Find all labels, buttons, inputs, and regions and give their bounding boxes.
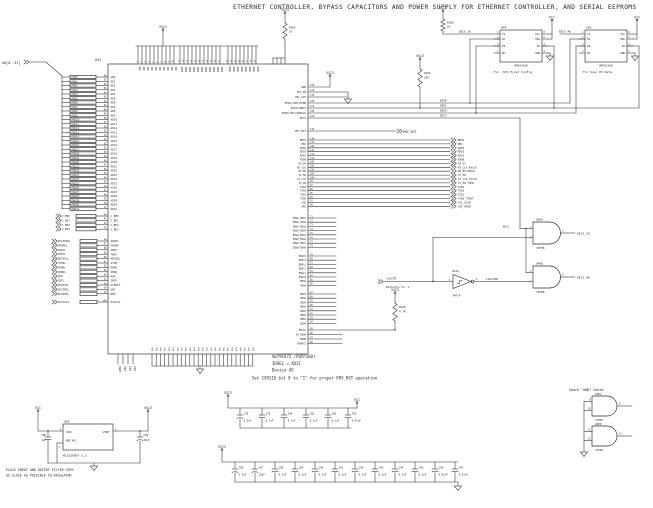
mii-ext-label: TXD0_TXDAT — [458, 197, 474, 201]
pci-int-label: DEVSEL — [111, 257, 121, 261]
u50-gndadj-pin-number: 1 — [59, 445, 61, 449]
bottom-pin-label: VSS — [194, 346, 196, 351]
pci-int-label: FRAME — [111, 244, 119, 248]
pin-number: 2 — [529, 236, 531, 239]
mii-int-label: RX_CLK — [297, 165, 307, 169]
u50-gndadj-label: GND_ADJ — [66, 439, 77, 443]
bottom-pin-label: VSS — [182, 346, 184, 351]
eb-int-label: EBUA_EBA5 — [293, 225, 307, 228]
mii-int-label: TXD2 — [300, 189, 307, 193]
eb-int-label: EBD4 — [300, 306, 306, 309]
offpage-connector — [451, 150, 456, 154]
top-pin-label: VDDB — [196, 67, 199, 73]
mii-int-label: RX_DV — [298, 161, 306, 165]
eeprom-pin-label: SK — [587, 37, 591, 41]
vcc3-rwu-symbol — [329, 75, 331, 77]
r106-symbol — [393, 302, 397, 322]
offpage-connector — [56, 223, 61, 227]
r455-symbol — [283, 22, 287, 40]
pci-int-label: IDSEL — [111, 239, 119, 243]
pin-number: 108 — [310, 161, 315, 164]
eecs-4k-out-label: EECS_4K — [577, 276, 590, 280]
u43a-part: 74F14 — [452, 294, 461, 298]
eb-int-label: EBUA_EBA4 — [293, 230, 307, 233]
led-pin-label: LED2 — [128, 366, 131, 372]
offpage-connector — [451, 158, 456, 162]
pin-number: 117 — [310, 141, 315, 144]
top-pin-label: VDDB — [192, 67, 195, 73]
ground-symbol — [458, 486, 462, 491]
ground-symbol — [635, 56, 639, 61]
cbe-int-label: C_BE0 — [111, 214, 119, 218]
offpage-connector — [451, 146, 456, 150]
u50-part: MC33269DT-3.3 — [63, 454, 87, 458]
bottom-pin-label: VSS — [173, 346, 175, 351]
offpage-connector — [378, 280, 383, 284]
pciclk-int-label: PCICLK — [111, 300, 121, 304]
led-pin-label: LED3 — [133, 366, 136, 372]
ad-ext-label: PAD12 — [72, 126, 80, 130]
offpage-connector — [52, 292, 57, 296]
mii-int-label: TX_ER — [298, 173, 306, 177]
junction-dot — [419, 107, 420, 108]
eb-int-label: EBA13 — [299, 263, 307, 266]
pin-number: 104 — [310, 169, 315, 172]
pci-int-label: TRDY — [111, 252, 118, 256]
eb-int-label: EBA12 — [299, 268, 307, 271]
eb-int-label: EBD3 — [300, 310, 306, 313]
eb-int-label: EBD1 — [300, 318, 306, 321]
pci-ext-label: TRDYL — [58, 252, 66, 256]
eeprom-pin-label: ORG — [620, 37, 625, 41]
top-pin-label: VDDB — [180, 67, 183, 73]
bottom-pin-label: VSS — [249, 346, 251, 351]
u45-caption: For User EV Data — [583, 70, 612, 74]
capacitor-designator: C94 — [399, 466, 404, 470]
eb-int-label: EBA10 — [299, 276, 307, 279]
chip-idsel-note: IDSEL = AD21 — [272, 361, 301, 366]
pci-int-label: GNT — [111, 288, 116, 292]
pci-box — [80, 257, 97, 260]
pci-ext-label: PCIIDSEL — [58, 239, 71, 243]
sheet-title: ETHERNET CONTROLLER, BYPASS CAPACITORS A… — [233, 4, 636, 11]
ad-ext-label: PAD17 — [72, 147, 80, 151]
eeprom-int-label: EEDI/LNKST — [291, 106, 307, 110]
vcc-regulator-in-symbol — [37, 410, 39, 412]
top-pin-label: VDDB — [204, 67, 207, 73]
capacitor-value: 0.01uF — [439, 473, 449, 477]
capacitor-value: 0.01uF — [459, 473, 469, 477]
ad-bus-label: AD[0..31] — [2, 61, 20, 65]
offpage-connector — [451, 181, 456, 185]
chip-part-number: Am79C972 (PQFP160) — [272, 354, 315, 359]
mii-ext-label: TXD3 — [458, 185, 465, 189]
bottom-pin-label: VSS — [215, 346, 217, 351]
capacitor-designator: C87 — [259, 466, 264, 470]
eeprom-pin-label: ORG — [535, 37, 540, 41]
eb-int-label: EBUA_EBA3 — [293, 234, 307, 237]
regulator-outline — [63, 424, 113, 450]
ad-ext-label: PAD21 — [72, 164, 80, 168]
ad-ext-label: PAD9 — [72, 113, 79, 117]
top-pin-label: VDDB — [216, 67, 219, 73]
cbe-ext-label: C_BE3 — [62, 227, 70, 231]
eeprom-pin-label: CS — [587, 32, 591, 36]
ad-ext-label: PAD1 — [72, 79, 79, 83]
capacitor-value: 2.2uF — [239, 473, 247, 477]
mii-ext-label: TX_ER — [458, 173, 466, 177]
ad-ext-label: PAD10 — [72, 118, 80, 122]
cbe-ext-label: C_BE0 — [62, 214, 70, 218]
pin-number: 6 — [562, 274, 564, 277]
schematic-canvas: ETHERNET CONTROLLER, BYPASS CAPACITORS A… — [0, 0, 653, 508]
r104-designator: R104 — [424, 71, 431, 75]
eb-int-label: EBA14 — [299, 259, 307, 262]
top-pin-label: AVDD — [256, 67, 259, 73]
ad-ext-label: PAD2 — [72, 84, 79, 88]
offpage-connector — [451, 161, 456, 165]
offpage-connector — [52, 279, 57, 283]
cbe-box — [76, 214, 96, 217]
offpage-connector — [451, 138, 456, 142]
mii-int-label: TXD0 — [300, 197, 307, 201]
eb-int-label: EBUA_EBA1 — [293, 242, 307, 245]
eb-int-label: EBA11 — [299, 272, 307, 275]
eecs-1k-out-label: EECS_1K — [577, 232, 590, 236]
ad-ext-label: PAD31 — [72, 207, 80, 211]
ad-ext-label: PAD13 — [72, 130, 80, 134]
eb-int-label: EBUA_EBA2 — [293, 238, 307, 241]
misc-int-label: RWU — [301, 85, 306, 89]
eeprom-pin-label: GND — [620, 51, 625, 55]
bottom-pin-label: VSS — [224, 346, 226, 351]
mii-ext-label: RX_ER_RXDAT — [458, 169, 476, 173]
mii-ext-label: RXD0 — [458, 158, 465, 162]
ad-ext-label: PAD30 — [72, 203, 80, 207]
pci-box — [80, 292, 97, 295]
eb-int-label: EBD6 — [300, 297, 306, 300]
capacitor-value: 10uF — [259, 473, 266, 477]
ad-ext-label: PAD7 — [72, 105, 79, 109]
u45-designator: U45 — [586, 26, 592, 30]
bottom-pin-label: VSS — [245, 346, 247, 351]
ad-ext-label: PAD24 — [72, 177, 80, 181]
cbe-box — [76, 223, 96, 226]
top-pin-label: AVDD — [252, 67, 255, 73]
u40a-part: 74F08 — [536, 246, 545, 250]
vcc3-r106-symbol — [394, 292, 396, 294]
capacitor-designator: C79 — [266, 412, 271, 416]
u50-designator: U50 — [64, 420, 70, 424]
ground-symbol — [632, 56, 636, 61]
c86-value: 1uF — [41, 438, 46, 442]
pin-number: 5 — [529, 280, 531, 283]
u40b-designator: U40B — [536, 262, 543, 266]
offpage-connector — [451, 200, 456, 204]
pin-number: 144 — [102, 299, 107, 302]
mii-ext-label: RXD3 — [458, 146, 465, 150]
capacitor-value: 0.1uF — [399, 473, 407, 477]
vcc3-r104-symbol — [419, 58, 421, 60]
chip-csr-note: Set CSR116 bit 0 to "1" for proper PHY_R… — [252, 376, 378, 381]
pin-number: 135 — [310, 84, 315, 87]
mii-ext-label: MDC — [458, 142, 463, 146]
pin-number: 3 — [562, 230, 564, 233]
ad-ext-label: PAD18 — [72, 152, 80, 156]
offpage-connector — [451, 142, 456, 146]
ground-symbol — [550, 56, 554, 61]
cbe-box — [76, 219, 96, 222]
chip-device-note: Device #5 — [272, 368, 294, 373]
eb-ctrl-int-label: EROMCS — [297, 343, 306, 346]
ad-bus-trunk — [30, 62, 62, 209]
eb-int-label: EBUA_EBA0 — [293, 246, 307, 249]
bottom-pin-label: VSS — [253, 346, 255, 351]
ad-ext-label: PAD20 — [72, 160, 80, 164]
u40a-designator: U40A — [536, 218, 543, 222]
ground-symbol — [94, 466, 98, 471]
u40c-designator: U40C — [595, 392, 602, 396]
offpage-connector — [52, 248, 57, 252]
chip-designator: U41 — [95, 58, 102, 62]
eb-int-label: EBUA_EBA6 — [293, 221, 307, 224]
capacitor-designator: C96 — [439, 466, 444, 470]
pci-ext-label: PERRL — [58, 265, 66, 269]
ethernet-controller-outline — [108, 64, 308, 354]
capacitor-value: 0.1uF — [319, 473, 327, 477]
eb-int-label: EBA8 — [300, 284, 306, 287]
bottom-pin-label: VSS — [190, 346, 192, 351]
offpage-connector — [52, 265, 57, 269]
pci-int-label: PCIRST — [111, 283, 121, 287]
top-pin-label: VDD — [162, 67, 165, 72]
bottom-pin-label: VSS — [198, 346, 200, 351]
mii-int-label: TX_EN — [298, 181, 306, 185]
mii-int-label: RXD1 — [300, 154, 307, 158]
offpage-connector — [451, 189, 456, 193]
eb-int-label: EBD7 — [300, 293, 306, 296]
top-pin-label: VDD — [170, 67, 173, 72]
offpage-connector — [56, 214, 61, 218]
pci-ext-label: SERRL — [58, 270, 66, 274]
cbe-int-label: C_BE3 — [111, 227, 119, 231]
pci-ext-label: FRAMEL — [58, 243, 68, 247]
schmitt-hysteresis-icon — [457, 281, 462, 284]
c1actrb-net-label: C1ACTRB — [486, 277, 498, 281]
top-pin-label: AVDD — [244, 67, 247, 73]
capacitor-value: 0.1uF — [379, 473, 387, 477]
mii-int-label: COL — [301, 200, 306, 204]
eecs-1k-net-label: EECS_1K — [459, 30, 471, 34]
ad-ext-label: PAD5 — [72, 96, 79, 100]
offpage-connector — [24, 60, 29, 64]
offpage-connector — [52, 287, 57, 291]
c1actr-net-label: C1ACTR — [386, 277, 396, 281]
pin-number: 116 — [310, 145, 315, 148]
offpage-connector — [451, 197, 456, 201]
pin-number: 119 — [310, 128, 315, 131]
offpage-connector — [451, 154, 456, 158]
ground-symbol — [455, 486, 459, 491]
phy-rst-net-label: PHY_RST — [403, 130, 417, 134]
capacitor-value: 0.1uF — [266, 419, 274, 423]
pci-int-label: SERR — [111, 270, 118, 274]
top-pin-label: VDDB — [188, 67, 191, 73]
u40d-gate — [592, 426, 617, 446]
vcc3-r455-symbol — [284, 12, 286, 14]
ad-ext-label: PAD6 — [72, 101, 79, 105]
offpage-connector — [52, 243, 57, 247]
eeprom-pin-label: DO — [622, 44, 626, 48]
capacitor-designator: C91 — [339, 466, 344, 470]
offpage-connector — [451, 177, 456, 181]
pin-number: 118 — [310, 137, 315, 140]
pci-box — [80, 270, 97, 273]
eecs-net-label: EECS — [440, 114, 447, 118]
capacitor-value: 0.1uF — [288, 419, 296, 423]
offpage-connector — [52, 252, 57, 256]
eb-int-label: EBA15 — [299, 255, 307, 258]
eb-int-label: EBUA_EBA7 — [293, 217, 307, 220]
bottom-pin-label: VSS — [219, 346, 221, 351]
pci-int-label: PERR — [111, 266, 118, 270]
offpage-connector — [451, 193, 456, 197]
bottom-pin-label: VSS — [161, 346, 163, 351]
eb-ctrl-int-label: EBCLK — [299, 329, 307, 332]
eb-ctrl-int-label: AS_EBOE — [296, 334, 307, 337]
eeprom-pin-label: NC — [587, 51, 591, 55]
offpage-connector — [56, 227, 61, 231]
led-pin-label: LED1 — [123, 366, 126, 372]
cbe-ext-label: C_BE2 — [62, 223, 70, 227]
pci-int-label: PAR — [111, 274, 116, 278]
r104-value: 10K — [424, 76, 429, 80]
pin-number: 114 — [310, 149, 315, 152]
eecs-4k-net-label: EECS_4K — [559, 30, 571, 34]
mii-ext-label: TX_EN_TXEN — [458, 181, 474, 185]
ad-ext-label: PAD28 — [72, 194, 80, 198]
pci-box — [80, 279, 97, 282]
pci-int-label: INTA — [111, 279, 118, 283]
eesk-net-label: EESK — [440, 99, 447, 103]
capacitor-designator: C78 — [244, 412, 249, 416]
mii-int-label: TX_CLK — [297, 177, 307, 181]
top-pin-label: VDD — [174, 67, 177, 72]
capacitor-designator: C81 — [310, 412, 315, 416]
offpage-connector — [56, 218, 61, 222]
bottom-pin-label: VSS — [169, 346, 171, 351]
ground-symbol — [197, 369, 201, 374]
cbe-int-label: C_BE2 — [111, 223, 119, 227]
mii-ext-label: RX_DV — [458, 161, 466, 165]
mii-int-label: MDC — [301, 142, 306, 146]
eecs-net-label-2: EECS — [503, 224, 510, 228]
top-pin-label: AVDD — [240, 67, 243, 73]
offpage-connector — [52, 261, 57, 265]
pciclk-ext-label: PCICLK3 — [58, 300, 69, 304]
ad-ext-label: PAD0 — [72, 75, 79, 79]
u44-designator: U44 — [501, 26, 507, 30]
eeprom-pin-label: GND — [535, 51, 540, 55]
u40b-part: 74F08 — [536, 290, 545, 294]
top-pin-label: VDDB — [200, 67, 203, 73]
pin-number: 111 — [310, 157, 315, 160]
ad-ext-label: PAD19 — [72, 156, 80, 160]
c84-value: 10uF — [144, 438, 151, 442]
pci-int-label: IRDY — [111, 248, 118, 252]
vcc-bypass-row1-symbol — [356, 402, 358, 404]
ad-ext-label: PAD29 — [72, 198, 80, 202]
pin-number: 134 — [310, 89, 315, 92]
capacitor-designator: C95 — [419, 466, 424, 470]
eedo-net-label: EEDO — [440, 109, 447, 113]
vcc-eeprom-symbol — [551, 19, 553, 21]
bottom-pin-label: VSS — [211, 346, 213, 351]
pci-int-label: STOP — [111, 261, 118, 265]
top-pin-label: VDD — [150, 67, 153, 72]
eeprom-pin-label: SK — [502, 37, 506, 41]
ground-symbol — [91, 466, 95, 471]
regulator-note-line1: PLACE INPUT AND OUTPUT FILTER CAPS — [6, 468, 74, 472]
mii-ext-label: MDIO — [458, 138, 465, 142]
pin-number: 113 — [310, 153, 315, 156]
u44-part: NM93C46N — [515, 64, 528, 68]
ad-ext-label: PAD22 — [72, 169, 80, 173]
ad-ext-label: PAD26 — [72, 186, 80, 190]
offpage-connector — [52, 283, 57, 287]
r108-value: 1K — [447, 25, 451, 29]
pci-ext-label: PCIRSTL — [58, 283, 69, 287]
top-pin-label: VDD — [154, 67, 157, 72]
capacitor-designator: C83 — [352, 412, 357, 416]
misc-int-label: TRC_OUT — [295, 95, 306, 99]
pci-box — [80, 253, 97, 256]
top-pin-label: AVDD — [232, 67, 235, 73]
capacitor-value: 0.1uF — [310, 419, 318, 423]
offpage-connector — [397, 129, 402, 133]
bottom-pin-label: VSS — [152, 346, 154, 351]
capacitor-designator: C88 — [279, 466, 284, 470]
eeprom-pin-label: DO — [537, 44, 541, 48]
eeprom-pin-label: NC — [502, 51, 506, 55]
ad-ext-label: PAD14 — [72, 135, 80, 139]
mii-ext-label: COL_CLSN — [458, 200, 471, 204]
capacitor-designator: C80 — [288, 412, 293, 416]
c86-designator: C86 — [41, 433, 46, 437]
ad-ext-label: PAD25 — [72, 181, 80, 185]
capacitor-designator: C92 — [359, 466, 364, 470]
bottom-pin-label: VSS — [177, 346, 179, 351]
top-pin-label: AVDD — [236, 67, 239, 73]
top-pin-label: AVDD — [228, 67, 231, 73]
capacitor-value: 0.1uF — [279, 473, 287, 477]
capacitor-value: 0.1uF — [419, 473, 427, 477]
offpage-connector — [451, 204, 456, 208]
pci-ext-label: IRDYL — [58, 248, 66, 252]
eeprom-int-label: EEDO/LED3/SRDCLK — [282, 111, 307, 115]
eeprom-pin-label: CS — [502, 32, 506, 36]
bottom-pin-label: VSS — [240, 346, 242, 351]
mii-ext-label: CRS_RXEN — [458, 204, 471, 208]
u44-caption: For '972 E/net Config. — [494, 70, 534, 74]
eeprom-pin-label: DI — [587, 44, 591, 48]
top-pin-label: VDD — [138, 67, 141, 72]
top-pin-label: VDDB — [220, 67, 223, 73]
ad-ext-label: PAD11 — [72, 122, 80, 126]
mii-int-label: MDIO — [300, 138, 307, 142]
regulator-note-line2: AS CLOSE AS POSSIBLE TO REGULATOR — [6, 474, 72, 478]
eeprom-pin-label: DI — [502, 44, 506, 48]
